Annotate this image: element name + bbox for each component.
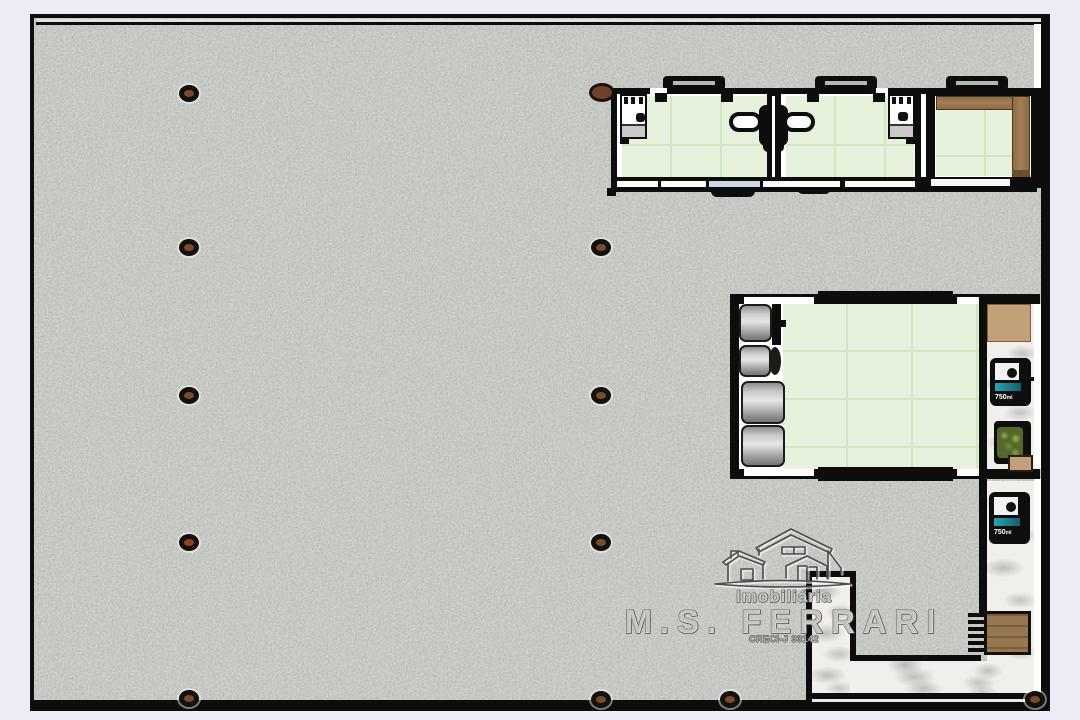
svg-text:CRECI-J 33142: CRECI-J 33142 (749, 634, 819, 644)
